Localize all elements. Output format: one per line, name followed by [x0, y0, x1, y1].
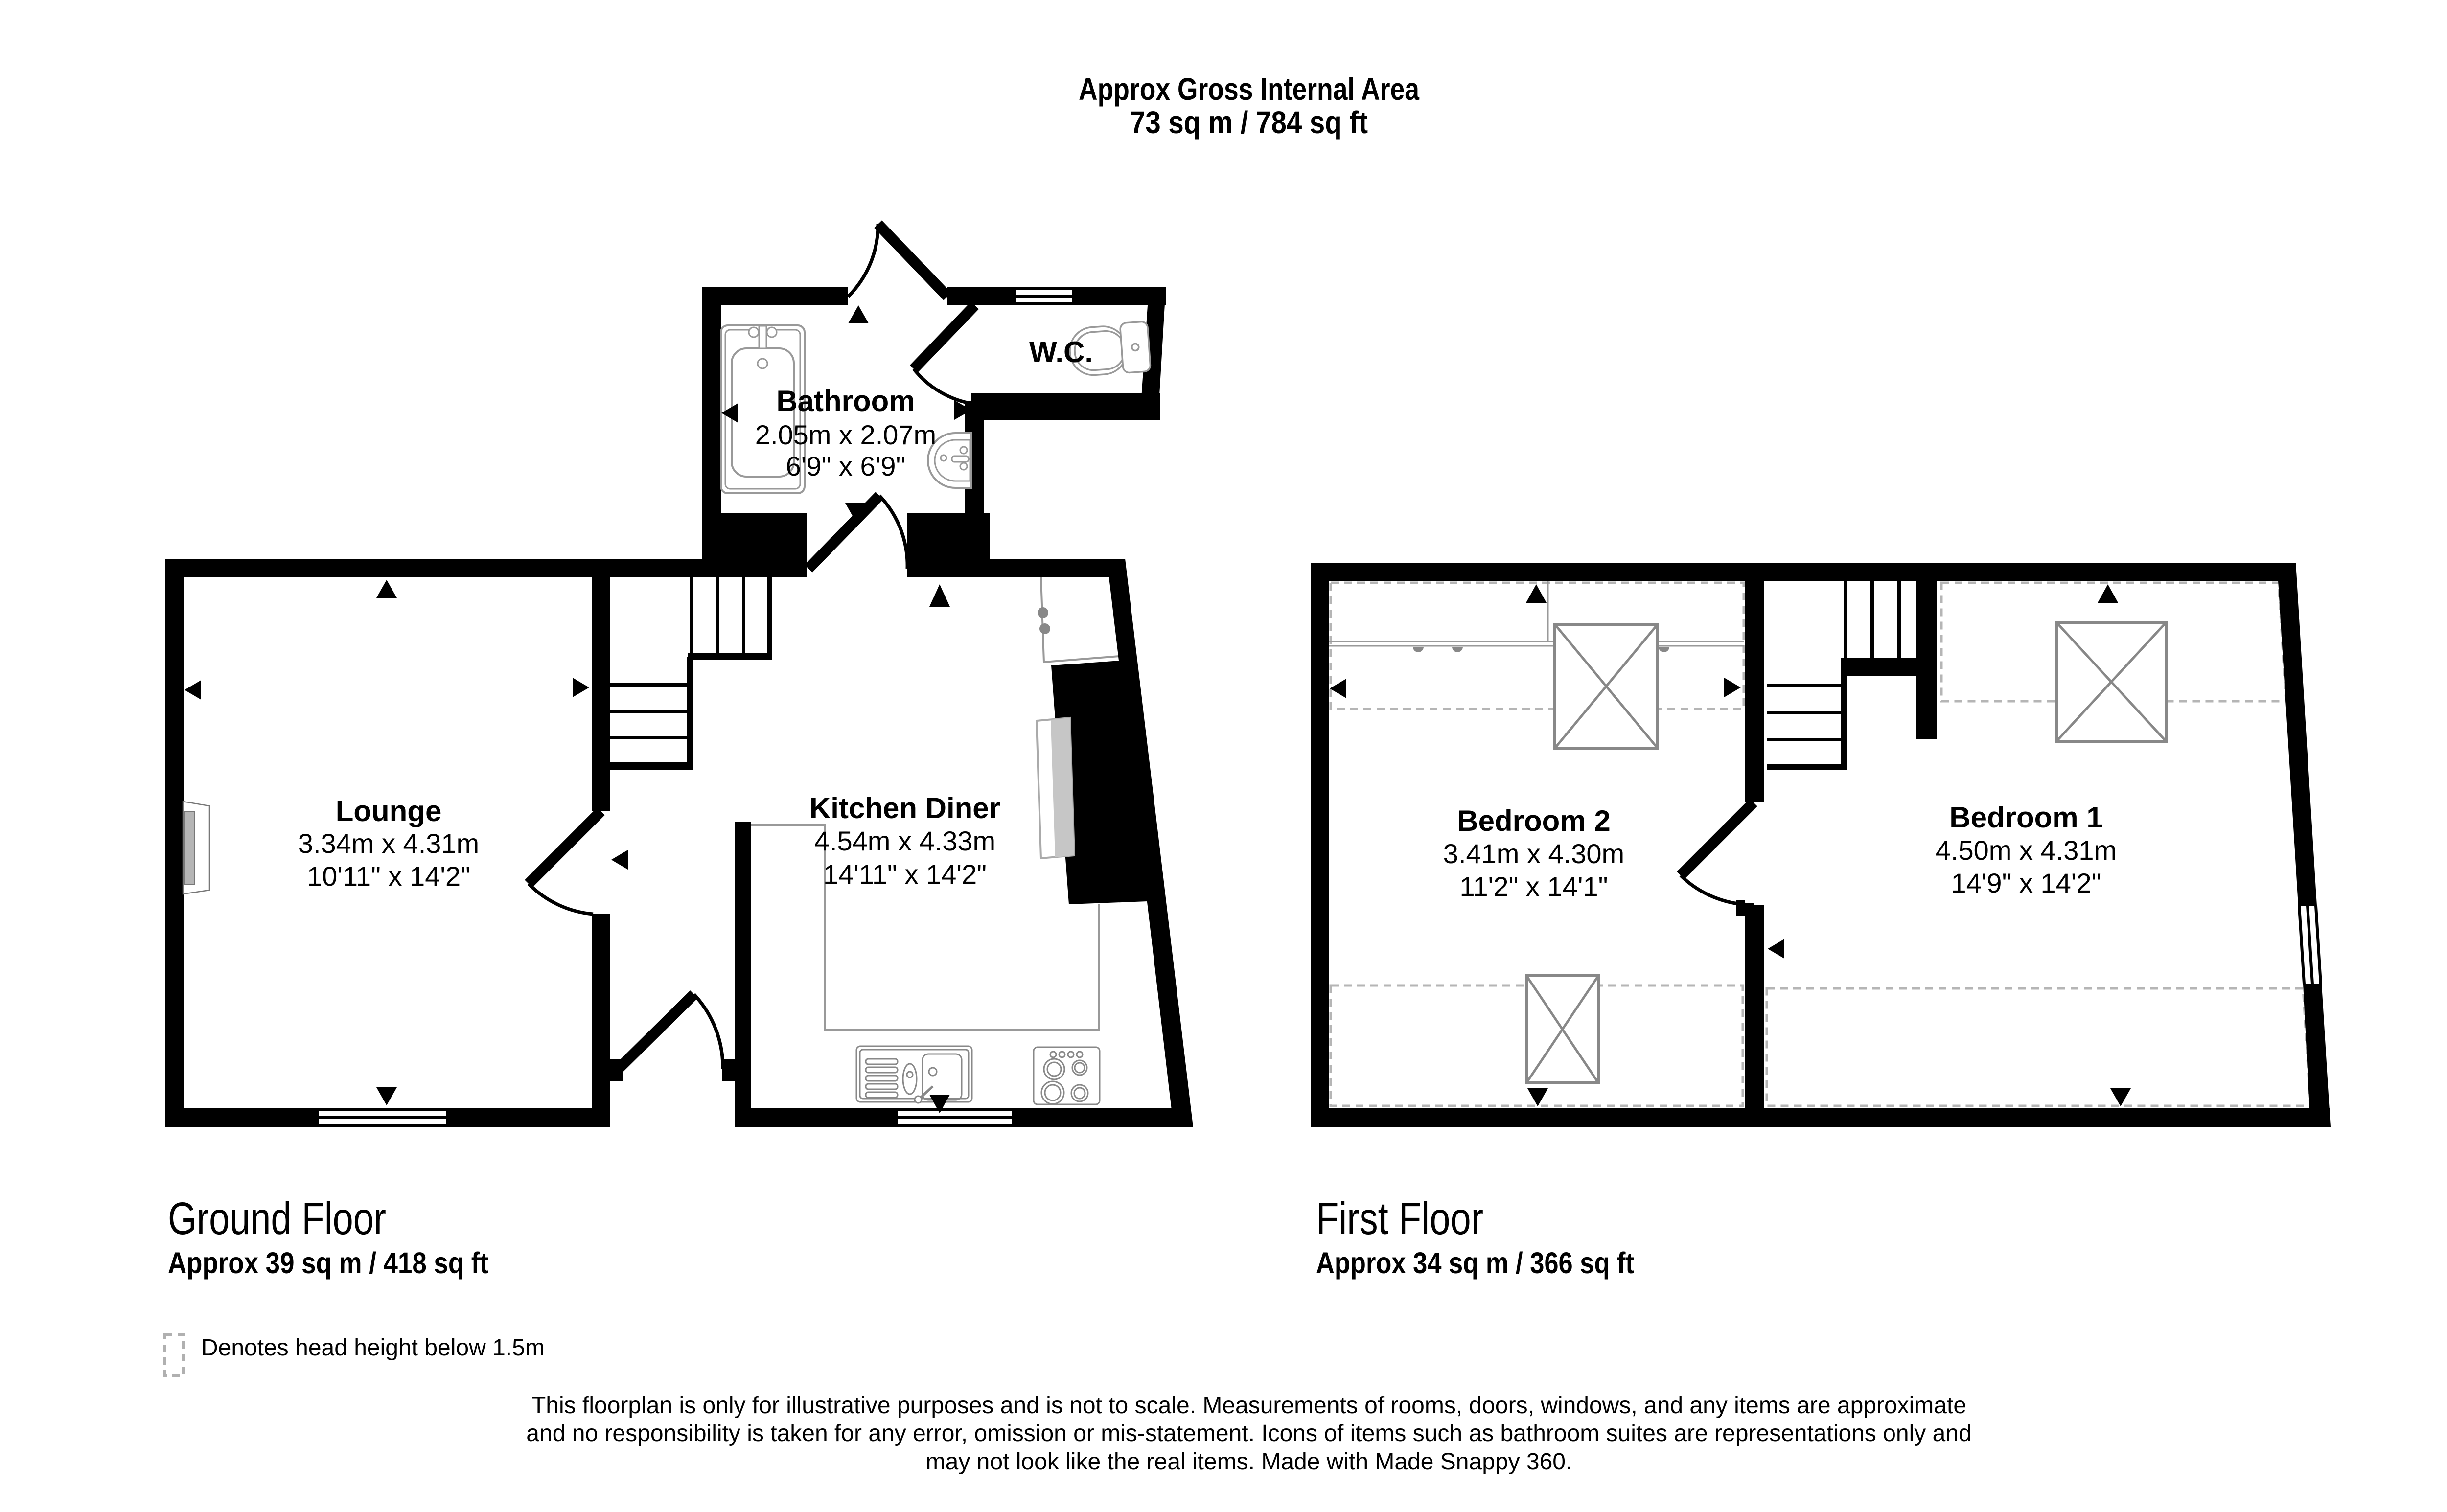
svg-text:This floorplan is only for ill: This floorplan is only for illustrative … — [531, 1393, 1966, 1419]
svg-text:W.C.: W.C. — [1029, 336, 1093, 368]
svg-text:11'2" x 14'1": 11'2" x 14'1" — [1460, 871, 1608, 902]
svg-text:Approx 39 sq m / 418 sq ft: Approx 39 sq m / 418 sq ft — [168, 1246, 488, 1280]
svg-text:Ground Floor: Ground Floor — [168, 1193, 386, 1244]
svg-text:3.41m x 4.30m: 3.41m x 4.30m — [1443, 838, 1624, 869]
svg-text:Kitchen Diner: Kitchen Diner — [809, 792, 1000, 825]
svg-text:First Floor: First Floor — [1316, 1193, 1483, 1244]
svg-text:and no responsibility is taken: and no responsibility is taken for any e… — [526, 1420, 1971, 1446]
svg-text:Approx Gross Internal Area: Approx Gross Internal Area — [1079, 71, 1419, 107]
svg-text:Bedroom 2: Bedroom 2 — [1457, 804, 1610, 837]
svg-text:73 sq m / 784 sq ft: 73 sq m / 784 sq ft — [1130, 105, 1368, 140]
svg-text:Denotes head height below 1.5m: Denotes head height below 1.5m — [201, 1335, 545, 1361]
svg-text:4.50m x 4.31m: 4.50m x 4.31m — [1936, 835, 2117, 866]
svg-text:6'9" x 6'9": 6'9" x 6'9" — [786, 451, 906, 481]
svg-text:4.54m x 4.33m: 4.54m x 4.33m — [814, 825, 995, 856]
svg-text:10'11" x 14'2": 10'11" x 14'2" — [307, 861, 470, 892]
svg-text:may not look like the real ite: may not look like the real items. Made w… — [926, 1449, 1572, 1475]
svg-text:Bedroom 1: Bedroom 1 — [1949, 801, 2102, 834]
svg-text:Bathroom: Bathroom — [776, 385, 915, 417]
svg-text:Approx 34 sq m / 366 sq ft: Approx 34 sq m / 366 sq ft — [1316, 1246, 1634, 1280]
svg-text:2.05m x 2.07m: 2.05m x 2.07m — [755, 419, 936, 450]
svg-text:14'9" x 14'2": 14'9" x 14'2" — [1951, 868, 2101, 898]
svg-text:14'11" x 14'2": 14'11" x 14'2" — [823, 859, 987, 890]
svg-text:Lounge: Lounge — [336, 795, 442, 827]
svg-text:3.34m x 4.31m: 3.34m x 4.31m — [298, 828, 479, 859]
